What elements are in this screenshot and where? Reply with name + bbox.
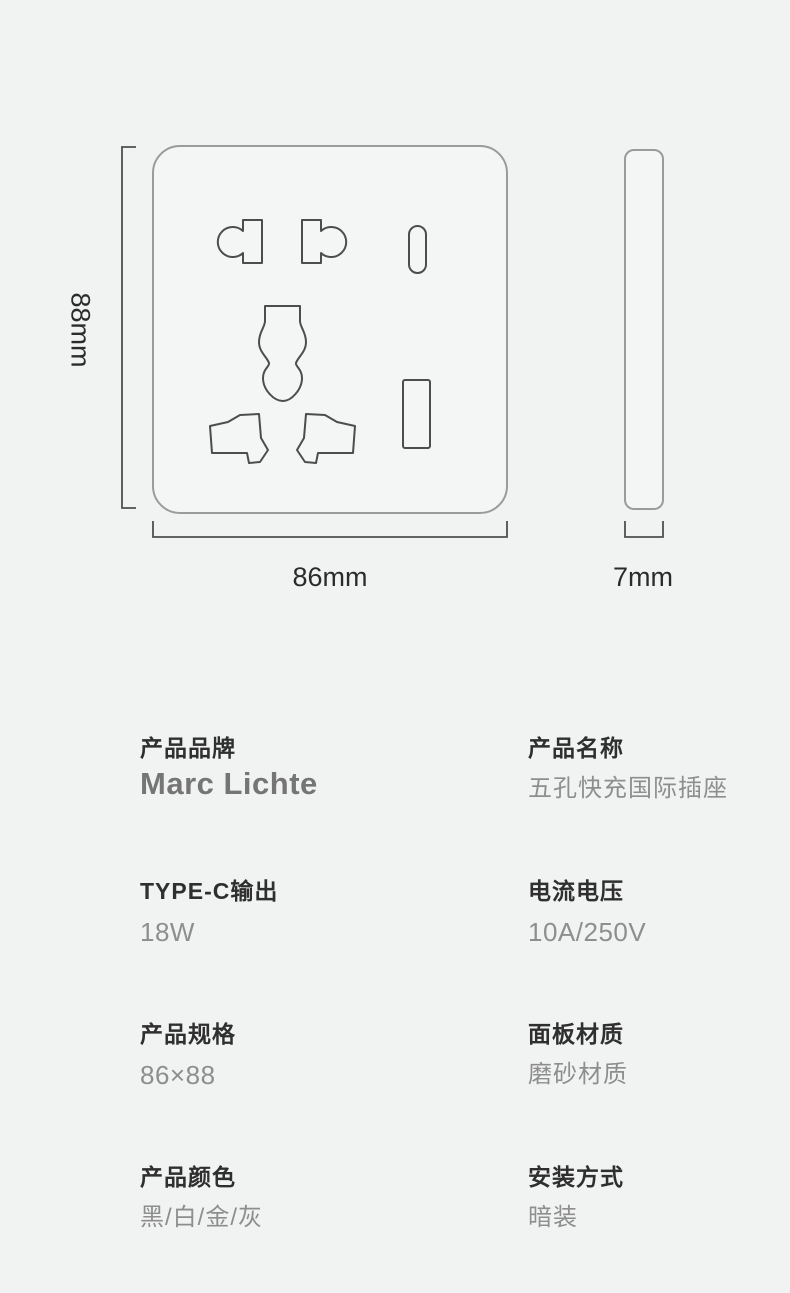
socket-line-drawing [0,0,790,660]
spec-current-voltage: 电流电压 10A/250V [528,876,646,947]
spec-product-name-value: 五孔快充国际插座 [528,774,728,804]
depth-dimension-bracket [625,521,663,537]
spec-color: 产品颜色 黑/白/金/灰 [140,1162,263,1233]
spec-install-method: 安装方式 暗装 [528,1162,624,1233]
spec-install-method-label: 安装方式 [528,1162,624,1192]
spec-panel-material: 面板材质 磨砂材质 [528,1019,628,1090]
depth-dimension-label: 7mm [613,562,673,593]
spec-size-value: 86×88 [140,1060,236,1090]
spec-install-method-value: 暗装 [528,1203,624,1233]
spec-brand-value: Marc Lichte [140,769,318,799]
spec-product-name: 产品名称 五孔快充国际插座 [528,733,728,804]
spec-typec-output: TYPE-C输出 18W [140,876,278,947]
product-spec-image: { "page": { "background_color": "#f1f2f2… [0,0,790,1293]
spec-brand: 产品品牌 Marc Lichte [140,733,318,799]
spec-typec-output-value: 18W [140,917,278,947]
spec-product-name-label: 产品名称 [528,733,728,763]
spec-brand-label: 产品品牌 [140,733,318,763]
spec-current-voltage-label: 电流电压 [528,876,646,906]
spec-current-voltage-value: 10A/250V [528,917,646,947]
spec-color-value: 黑/白/金/灰 [140,1203,263,1233]
spec-color-label: 产品颜色 [140,1162,263,1192]
width-dimension-label: 86mm [292,562,367,593]
spec-typec-output-label: TYPE-C输出 [140,876,278,906]
height-dimension-label: 88mm [65,292,96,367]
width-dimension-bracket [153,521,507,537]
dimension-diagram: 88mm 86mm 7mm [0,0,790,660]
spec-panel-material-value: 磨砂材质 [528,1060,628,1090]
spec-panel-material-label: 面板材质 [528,1019,628,1049]
socket-front-view-outline [153,146,507,513]
spec-size-label: 产品规格 [140,1019,236,1049]
height-dimension-bracket [122,147,136,508]
socket-side-view-outline [625,150,663,509]
spec-size: 产品规格 86×88 [140,1019,236,1090]
